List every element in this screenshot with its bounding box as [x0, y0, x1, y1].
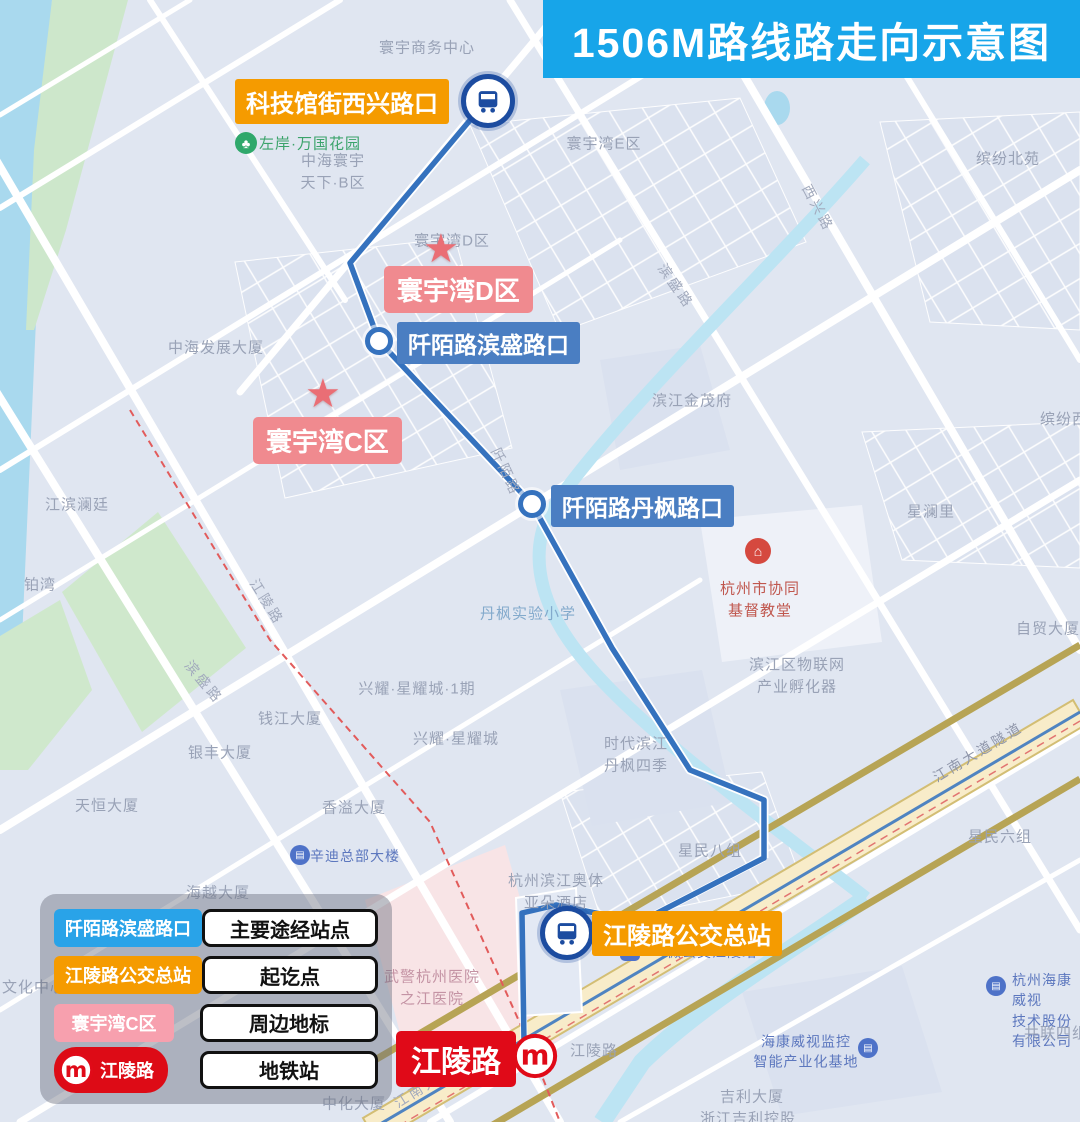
label-danfeng-school: 丹枫实验小学	[480, 603, 576, 624]
bus-glyph	[553, 919, 581, 947]
label-gonglian-4: 共联四组	[1024, 1022, 1080, 1043]
hikvision-co-icon: ▤	[986, 976, 1006, 996]
legend-chip-metro: m 江陵路	[54, 1047, 168, 1093]
label-binfen-north: 缤纷北苑	[976, 148, 1040, 169]
label-huanyu-business-center: 寰宇商务中心	[379, 37, 475, 58]
label-shidai-danfeng: 时代滨江 丹枫四季	[604, 733, 668, 777]
landmark-star-d: ★	[423, 229, 459, 269]
station-label-binsheng: 阡陌路滨盛路口	[397, 322, 580, 364]
legend-meaning-metro: 地铁站	[200, 1051, 378, 1089]
svg-text:m: m	[65, 1058, 87, 1083]
station-label-terminal: 江陵路公交总站	[592, 911, 782, 956]
legend-row-landmark: 寰宇湾C区 周边地标	[54, 1001, 378, 1045]
label-xindi-hq: 辛迪总部大楼	[310, 846, 400, 866]
legend-chip-metro-text: 江陵路	[100, 1057, 154, 1083]
label-hospital: 武警杭州医院 之江医院	[384, 966, 480, 1010]
legend-row-metro: m 江陵路 地铁站	[54, 1048, 378, 1092]
label-zuoan-garden: 左岸·万国花园	[259, 133, 361, 154]
park-icon: ♣	[235, 132, 257, 154]
svg-text:m: m	[521, 1039, 550, 1072]
label-zimao-tower: 自贸大厦	[1016, 618, 1080, 639]
label-jiangbin-lanting: 江滨澜廷	[45, 494, 109, 515]
legend-meaning-landmark: 周边地标	[200, 1004, 378, 1042]
label-tianheng-tower: 天恒大厦	[75, 795, 139, 816]
hikvision-base-icon: ▤	[858, 1038, 878, 1058]
label-church: 杭州市协同 基督教堂	[720, 578, 800, 622]
xindi-building-icon: ▤	[290, 845, 310, 865]
metro-logo-icon: m	[512, 1033, 558, 1079]
label-iot-incubator: 滨江区物联网 产业孵化器	[749, 654, 845, 698]
station-label-danfeng: 阡陌路丹枫路口	[551, 485, 734, 527]
label-binfen-west: 缤纷西苑	[1040, 408, 1080, 429]
label-huanyu-bay-e: 寰宇湾E区	[566, 133, 641, 154]
bus-station-icon-terminal	[540, 906, 594, 960]
stop-dot-binsheng	[365, 327, 393, 355]
page-title: 1506M路线路走向示意图	[543, 0, 1080, 78]
label-jiangling-road-small: 江陵路	[570, 1040, 618, 1061]
legend-chip-station: 阡陌路滨盛路口	[54, 909, 202, 947]
station-label-start: 科技馆街西兴路口	[235, 79, 449, 124]
label-xingmin-8: 星民八组	[678, 840, 742, 861]
landmark-star-c: ★	[305, 374, 341, 414]
metro-station-label: 江陵路	[396, 1031, 516, 1087]
route-map: 寰宇商务中心 寰宇湾E区 寰宇湾D区 缤纷北苑 中海寰宇 天下·B区 左岸·万国…	[0, 0, 1080, 1122]
legend-row-terminal: 江陵路公交总站 起讫点	[54, 953, 378, 997]
label-xiangyi-tower: 香溢大厦	[322, 797, 386, 818]
label-zhonghai-tower: 中海发展大厦	[168, 337, 264, 358]
legend-row-station: 阡陌路滨盛路口 主要途经站点	[54, 906, 378, 950]
bus-station-icon-start	[461, 74, 515, 128]
label-geely-holding: 浙江吉利控股	[700, 1108, 796, 1122]
stop-dot-danfeng	[518, 490, 546, 518]
label-yinfeng-tower: 银丰大厦	[188, 742, 252, 763]
landmark-label-huanyu-c: 寰宇湾C区	[253, 417, 402, 464]
legend-meaning-station: 主要途经站点	[202, 909, 378, 947]
label-xingyao-phase1: 兴耀·星耀城·1期	[358, 678, 475, 699]
label-xingyao: 兴耀·星耀城	[413, 728, 499, 749]
label-xingmin-6: 星民六组	[968, 826, 1032, 847]
label-zhonghai-tianxia: 中海寰宇 天下·B区	[300, 150, 365, 194]
church-icon: ⌂	[745, 538, 771, 564]
label-bowan: 铂湾	[24, 574, 56, 595]
label-xinglanli: 星澜里	[907, 501, 955, 522]
label-qianjiang-tower: 钱江大厦	[258, 708, 322, 729]
legend-chip-landmark: 寰宇湾C区	[54, 1004, 174, 1042]
legend-meaning-terminal: 起讫点	[202, 956, 378, 994]
legend-metro-logo-icon: m	[58, 1052, 94, 1088]
legend: 阡陌路滨盛路口 主要途经站点 江陵路公交总站 起讫点 寰宇湾C区 周边地标 m …	[40, 894, 392, 1104]
label-hikvision-base: 海康威视监控 智能产业化基地	[754, 1032, 859, 1073]
label-geely-tower: 吉利大厦	[720, 1086, 784, 1107]
label-jinmaofu: 滨江金茂府	[652, 390, 732, 411]
landmark-label-huanyu-d: 寰宇湾D区	[384, 266, 533, 313]
legend-chip-terminal: 江陵路公交总站	[54, 956, 202, 994]
bus-glyph	[474, 87, 502, 115]
